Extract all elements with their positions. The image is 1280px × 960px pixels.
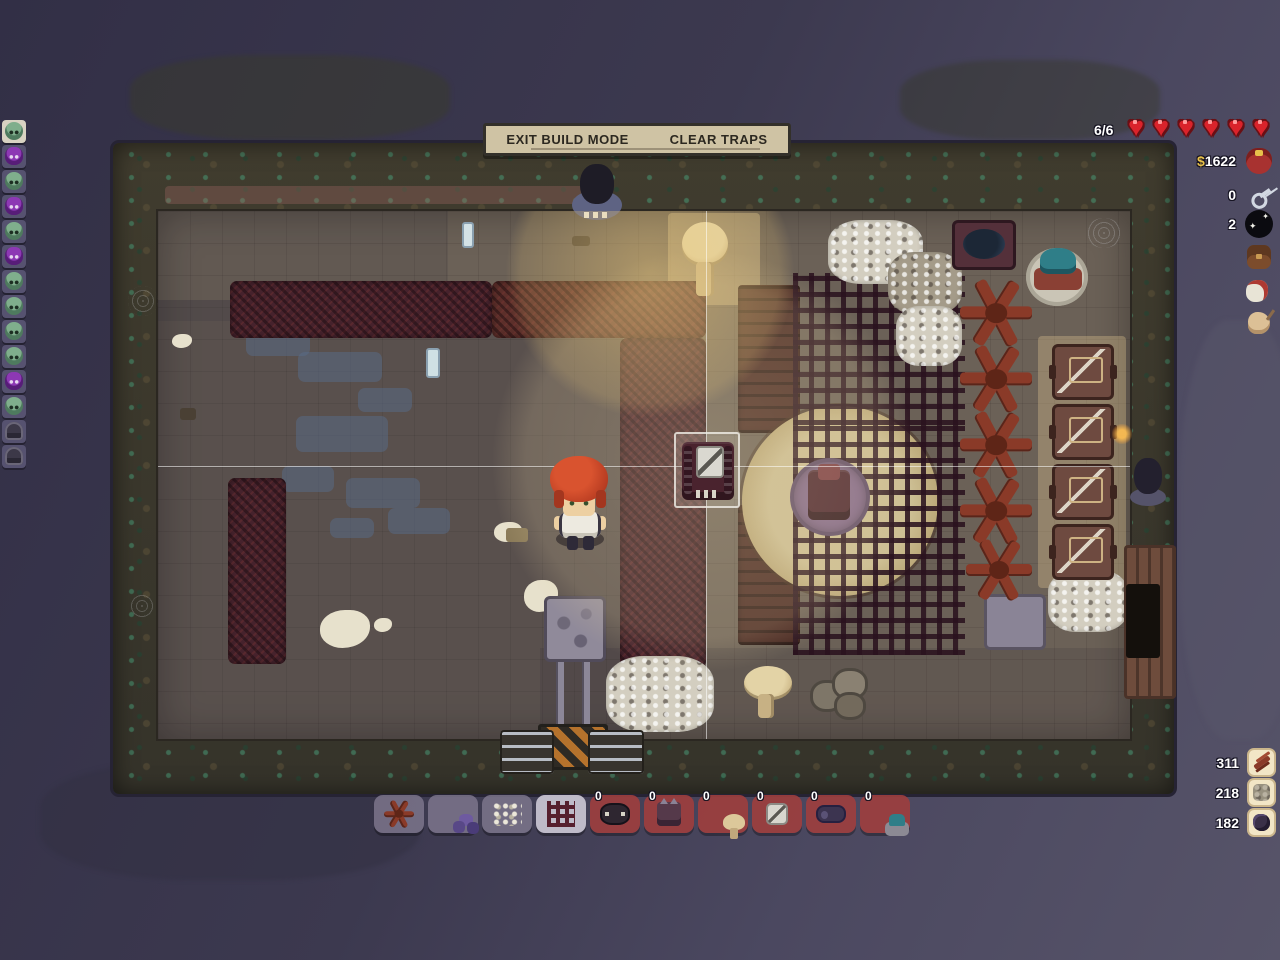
wood-readout: 311	[1216, 748, 1276, 777]
floor-debris	[180, 408, 196, 420]
satchel-icon	[1244, 242, 1274, 272]
spike-branches	[960, 412, 1032, 478]
key-icon	[1244, 180, 1274, 210]
outside-ground	[1180, 320, 1280, 740]
currency-symbol: $	[1197, 153, 1205, 169]
hotbar-slot-gravel[interactable]	[482, 795, 532, 833]
heart-icon	[1228, 116, 1252, 142]
stone-slab	[984, 594, 1046, 650]
player-character	[550, 454, 610, 552]
placed-trap[interactable]	[682, 442, 734, 500]
right-wall-statue	[1134, 458, 1162, 494]
gravel-icon	[1247, 778, 1276, 807]
crate[interactable]	[1052, 344, 1114, 400]
green-monster-icon	[5, 397, 23, 415]
hotbar-slot-spike-trap[interactable]: 0	[644, 795, 694, 833]
money-readout: $1622	[1197, 146, 1274, 176]
bear-trap-icon	[600, 803, 630, 825]
glass-bottle	[462, 222, 474, 248]
entrance-ramp	[588, 730, 644, 774]
void-readout: 2	[1228, 209, 1274, 239]
trap-tread	[724, 446, 732, 494]
sidebar-slot-green-monster[interactable]	[2, 345, 26, 368]
slot-count: 0	[757, 789, 764, 803]
top-wall-statue	[580, 164, 614, 204]
purple-spider-icon	[5, 247, 23, 265]
player-hair-tuft	[596, 490, 606, 508]
rail	[556, 662, 564, 732]
bottom-mushroom-stem	[758, 694, 774, 718]
machine-glass	[963, 229, 1005, 259]
ore-readout: 182	[1216, 808, 1276, 837]
spike-branches	[960, 346, 1032, 412]
purple-spider-icon	[5, 147, 23, 165]
sidebar-slot-green-monster[interactable]	[2, 170, 26, 193]
meat-icon	[1242, 276, 1272, 306]
tesla-turret[interactable]	[1040, 248, 1076, 274]
hotbar-slot-spike-branches[interactable]	[374, 795, 424, 833]
stone-count: 218	[1216, 785, 1239, 801]
health-counter: 6/6	[1094, 122, 1113, 138]
hotbar-slot-net-grid[interactable]	[536, 795, 586, 833]
spike-branches	[960, 280, 1032, 346]
green-monster-icon	[5, 297, 23, 315]
slot-count: 0	[811, 789, 818, 803]
sidebar-slot-purple-spider[interactable]	[2, 245, 26, 268]
hotbar-slot-box-trap[interactable]: 0	[752, 795, 802, 833]
satchel-readout	[1244, 242, 1274, 272]
game-viewport: EXIT BUILD MODE CLEAR TRAPS 6/6 $1622 0 …	[0, 0, 1280, 960]
player-leg	[583, 536, 594, 550]
green-monster-icon	[5, 122, 23, 140]
rail	[582, 662, 590, 732]
statue-fangs	[584, 212, 610, 218]
spider-web	[128, 592, 156, 620]
sidebar-slot-hooded-ghost[interactable]	[2, 445, 26, 468]
void-sparkle-icon	[1244, 209, 1274, 239]
sidebar-slot-green-monster[interactable]	[2, 295, 26, 318]
ore-count: 182	[1216, 815, 1239, 831]
meat-readout	[1242, 276, 1272, 306]
hotbar-slot-mushroom[interactable]: 0	[698, 795, 748, 833]
dark-rock-icon	[1247, 808, 1276, 837]
sidebar-slot-green-monster[interactable]	[2, 320, 26, 343]
floor-stain	[330, 518, 374, 538]
hotbar-slot-purple-rocks[interactable]	[428, 795, 478, 833]
rug-center-trap[interactable]	[808, 470, 850, 520]
heart-icon	[1128, 116, 1152, 142]
purple-spider-icon	[5, 372, 23, 390]
heart-icon	[1153, 116, 1177, 142]
green-monster-icon	[5, 222, 23, 240]
stone-readout: 218	[1216, 778, 1276, 807]
void-count: 2	[1228, 216, 1236, 232]
health-hearts	[1128, 116, 1277, 142]
floor-stain	[358, 388, 412, 412]
spider-web	[1086, 218, 1122, 248]
spike-branches	[966, 540, 1032, 600]
purple-spider-icon	[5, 197, 23, 215]
green-monster-icon	[5, 172, 23, 190]
green-monster-icon	[5, 322, 23, 340]
crate[interactable]	[1052, 404, 1114, 460]
slot-count: 0	[649, 789, 656, 803]
crate[interactable]	[1052, 524, 1114, 580]
crosshair-horizontal	[158, 466, 1130, 467]
keys-readout: 0	[1228, 180, 1274, 210]
sidebar-slot-green-monster[interactable]	[2, 395, 26, 418]
lit-mushroom-stem	[696, 262, 714, 296]
hotbar-slot-turret[interactable]: 0	[860, 795, 910, 833]
trap-tread	[684, 446, 692, 494]
wood-count: 311	[1216, 755, 1239, 771]
spike-branches-icon	[384, 800, 414, 828]
green-monster-icon	[5, 272, 23, 290]
trap-box-head	[696, 446, 724, 478]
log-trap-icon	[816, 805, 846, 823]
outside-foliage	[900, 60, 1160, 140]
thorn-wall	[228, 478, 286, 664]
log-trap-machine[interactable]	[952, 220, 1016, 270]
floor-debris	[572, 236, 590, 246]
keys-count: 0	[1228, 187, 1236, 203]
entrance-ramp	[500, 730, 554, 774]
outside-foliage	[130, 55, 450, 140]
sidebar-slot-green-monster[interactable]	[2, 120, 26, 143]
panel-underline	[531, 148, 760, 150]
branch-icon	[1247, 748, 1276, 777]
box-trap-icon	[766, 803, 788, 825]
slot-count: 0	[595, 789, 602, 803]
player-hair-tuft	[554, 490, 564, 508]
bait-pouch-icon	[1244, 308, 1274, 338]
hooded-ghost-icon	[5, 422, 23, 440]
sidebar-slot-green-monster[interactable]	[2, 220, 26, 243]
heart-icon	[1253, 116, 1277, 142]
hotbar-slot-log-trap[interactable]: 0	[806, 795, 856, 833]
hotbar-slot-bear-trap[interactable]: 0	[590, 795, 640, 833]
money-amount: 1622	[1205, 153, 1236, 169]
floor-stain	[296, 416, 388, 452]
build-mode-panel: EXIT BUILD MODE CLEAR TRAPS	[483, 123, 791, 156]
bait-readout	[1244, 308, 1274, 338]
thorn-wall	[492, 281, 706, 338]
gravel-patch	[888, 252, 962, 314]
trap-teeth	[696, 490, 720, 498]
player-leg	[567, 536, 578, 550]
exit-build-mode-button[interactable]: EXIT BUILD MODE	[506, 132, 628, 147]
clear-traps-button[interactable]: CLEAR TRAPS	[670, 132, 768, 147]
gravel-pile-icon	[492, 802, 522, 826]
rock-pile	[806, 664, 868, 720]
rock	[834, 692, 866, 720]
lit-mushroom	[682, 222, 728, 266]
heart-icon	[1203, 116, 1227, 142]
stone-platform	[544, 596, 606, 662]
slot-count: 0	[865, 789, 872, 803]
slot-count: 0	[703, 789, 710, 803]
floor-debris	[506, 528, 528, 542]
plank-floor	[738, 285, 800, 433]
green-monster-icon	[5, 347, 23, 365]
floor-stain	[388, 508, 450, 534]
sidebar-slot-purple-spider[interactable]	[2, 370, 26, 393]
sidebar-slot-purple-spider[interactable]	[2, 145, 26, 168]
sidebar-slot-green-monster[interactable]	[2, 270, 26, 293]
spike-trap-icon	[657, 802, 681, 826]
spider-web	[128, 286, 158, 316]
thorn-wall	[230, 281, 492, 338]
floor-stain	[298, 352, 382, 382]
sidebar-slot-purple-spider[interactable]	[2, 195, 26, 218]
door-opening	[1126, 584, 1160, 658]
sidebar-slot-hooded-ghost[interactable]	[2, 420, 26, 443]
wall-ledge	[165, 186, 595, 204]
gravel-patch	[896, 306, 962, 366]
heart-icon	[1178, 116, 1202, 142]
spike-branches	[960, 478, 1032, 544]
floor-stain	[282, 466, 334, 492]
glass-bottle	[426, 348, 440, 378]
net-grid-floor	[793, 425, 965, 655]
right-wooden-door[interactable]	[1124, 545, 1176, 699]
crate[interactable]	[1052, 464, 1114, 520]
build-hotbar: 0 0 0 0 0 0	[372, 793, 916, 839]
floor-stain	[346, 478, 420, 508]
lantern-glow	[1112, 424, 1132, 444]
hooded-ghost-icon	[5, 447, 23, 465]
gravel-patch	[606, 656, 714, 732]
net-grid-icon	[547, 801, 575, 827]
coin-purse-icon	[1244, 146, 1274, 176]
